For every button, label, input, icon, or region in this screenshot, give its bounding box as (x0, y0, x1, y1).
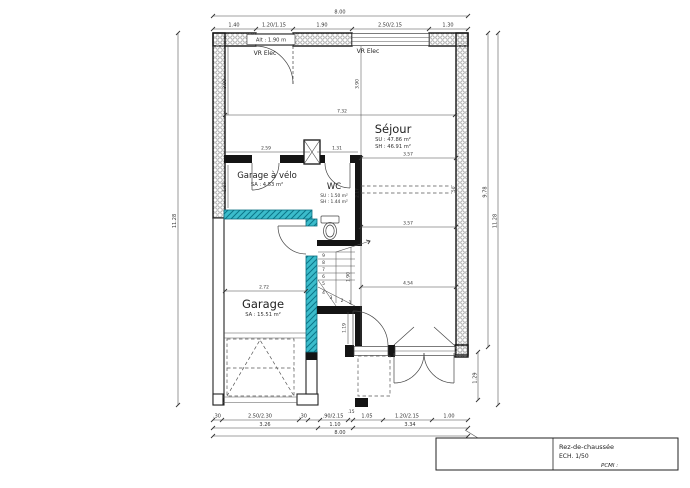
dim-label: 1.10 (329, 422, 340, 428)
dim-label: 1.05 (361, 414, 372, 420)
dim-label: 7.32 (337, 109, 347, 115)
room-area-sa: SA : 4.53 m² (251, 182, 283, 188)
dim-bottom: .30 2.50/2.30 .30 .90/2.15 .15 1.05 1.20… (211, 409, 470, 438)
dim-label: 3.90 (355, 79, 361, 89)
title-block-pcmi: PCMI : (601, 463, 618, 469)
dim-right: 9.78 11.28 1.29 (473, 31, 501, 407)
room-area-sa: SA : 15.51 m² (245, 312, 281, 318)
dim-label: 2.72 (259, 285, 269, 291)
stair-step: 4 (322, 290, 325, 296)
title-block-name: Rez-de-chaussée (559, 443, 614, 451)
dim-label: .15 (348, 409, 355, 415)
dim-label: .50 (451, 186, 457, 193)
dim-label: .30 (213, 414, 221, 420)
stair-step: 9 (322, 253, 325, 259)
dim-label: 4.54 (403, 281, 413, 287)
room-area-su: SU : 1.50 m² (320, 193, 348, 199)
vr-elec-label-left: VR Elec (254, 50, 277, 57)
dim-label: 2.59 (261, 146, 271, 152)
sejour-bottom-wall (345, 345, 455, 357)
title-block: Rez-de-chaussée ECH. 1/50 PCMI : (436, 430, 678, 470)
dim-label: 3.34 (404, 422, 415, 428)
dim-label: 3.90 (222, 79, 228, 89)
dim-label: 1.30 (442, 23, 453, 29)
wall-corner (306, 352, 317, 360)
floor-plan-drawing: 8.00 1.40 1.20/1.15 1.90 2.50/2.15 1.30 … (0, 0, 690, 488)
dim-top-total: 8.00 (334, 10, 345, 16)
room-label-wc: WC (327, 182, 341, 192)
garage-inner-door (278, 226, 306, 254)
dim-right-total: 11.28 (493, 214, 499, 228)
outside-step (358, 356, 390, 396)
dim-label: 1.90 (316, 23, 327, 29)
dim-label: .90/2.15 (323, 414, 344, 420)
garage-door (227, 339, 294, 396)
stair-step: 2 (341, 298, 344, 304)
dim-top: 8.00 1.40 1.20/1.15 1.90 2.50/2.15 1.30 (211, 10, 470, 32)
room-area-su: SU : 47.86 m² (375, 137, 411, 143)
dim-label: 2.50/2.15 (378, 23, 402, 29)
window-altitude-label: Alt : 1.90 m (256, 38, 286, 44)
highlighted-walls (224, 210, 317, 352)
floor-plan-sheet: 8.00 1.40 1.20/1.15 1.90 2.50/2.15 1.30 … (0, 0, 690, 488)
dim-label: 1.40 (228, 23, 239, 29)
dim-label: 1.19 (342, 323, 348, 333)
dim-label: 2.50/2.30 (248, 414, 272, 420)
dim-bottom-total: 8.00 (334, 430, 345, 436)
dim-right-lower: 1.29 (473, 372, 479, 383)
dim-left: 11.28 (172, 31, 180, 407)
dim-left-total: 11.28 (172, 214, 178, 228)
stair-step: 7 (322, 267, 325, 273)
vr-elec-label-right: VR Elec (357, 48, 380, 55)
room-label-garage: Garage (242, 297, 284, 311)
toilet-fixture (321, 216, 339, 240)
dim-label: 1.90 (346, 272, 352, 282)
stair-step: 8 (322, 260, 325, 266)
dim-label: 2.17 (355, 188, 361, 198)
dim-label: 3.26 (259, 422, 270, 428)
staircase: 1 2 3 4 5 6 7 8 9 (318, 240, 370, 306)
dim-label: 1.20/1.15 (262, 23, 286, 29)
stair-step: 3 (330, 295, 333, 301)
stair-step: 6 (322, 274, 325, 280)
dim-right-height: 9.78 (483, 186, 489, 197)
window-altitude-tag: Alt : 1.90 m (247, 35, 295, 45)
dim-label: 1.31 (332, 146, 342, 152)
room-label-sejour: Séjour (375, 122, 412, 136)
stair-step: 5 (322, 281, 325, 287)
title-block-scale: ECH. 1/50 (559, 453, 589, 460)
dim-label: 3.57 (403, 221, 413, 227)
dim-label: 1.87 (222, 182, 228, 192)
window-top-right (352, 34, 429, 46)
dim-label: 3.57 (403, 152, 413, 158)
dim-label: .30 (299, 414, 307, 420)
room-area-sh: SH : 1.44 m² (320, 199, 348, 205)
dim-label: 1.00 (443, 414, 454, 420)
dim-label: 1.20/2.15 (395, 414, 419, 420)
room-area-sh: SH : 46.91 m² (375, 144, 411, 150)
room-label-garage-velo: Garage à vélo (237, 170, 297, 181)
